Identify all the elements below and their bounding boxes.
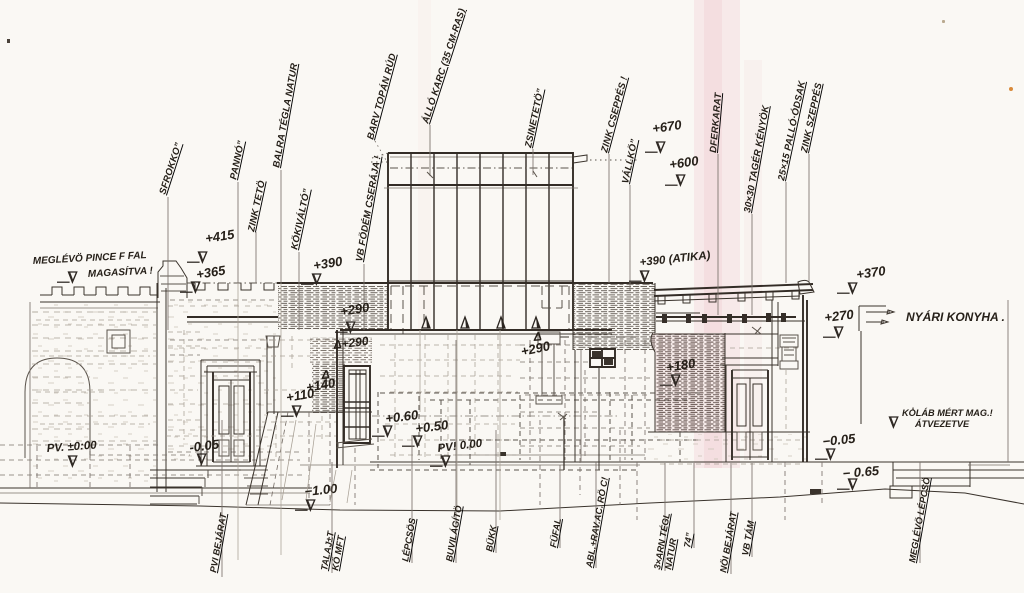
- svg-text:Δ: Δ: [532, 329, 542, 344]
- svg-text:SFROKKO”: SFROKKO”: [157, 141, 184, 196]
- svg-text:MAGASÍTVA !: MAGASÍTVA !: [87, 264, 153, 280]
- svg-text:MEGLÉVÖ LÉPCSÖ: MEGLÉVÖ LÉPCSÖ: [907, 477, 932, 564]
- svg-text:+415: +415: [204, 226, 236, 246]
- svg-text:+670: +670: [651, 117, 683, 136]
- svg-text:BARV TOPÁN RÚD: BARV TOPÁN RÚD: [364, 52, 399, 141]
- svg-text:ÁTVEZETVE: ÁTVEZETVE: [914, 419, 970, 429]
- svg-text:ZSINETETÖ”: ZSINETETÖ”: [523, 88, 546, 150]
- svg-text:+370: +370: [855, 263, 887, 282]
- svg-text:KO̊LÁB MÉRT MAG.!: KO̊LÁB MÉRT MAG.!: [902, 407, 993, 418]
- svg-text:PANNÓ”: PANNÓ”: [227, 139, 247, 180]
- svg-text:+110: +110: [285, 385, 316, 405]
- svg-text:FÜFAL: FÜFAL: [548, 517, 563, 548]
- svg-text:74”: 74”: [682, 532, 694, 549]
- svg-text:− 0.65: − 0.65: [842, 463, 880, 481]
- svg-text:ZINK CSEPPÉS !: ZINK CSEPPÉS !: [599, 75, 630, 154]
- svg-text:VÁLLKÖ”: VÁLLKÖ”: [620, 138, 640, 185]
- svg-text:PVI BEJÁRAT: PVI BEJÁRAT: [208, 511, 229, 573]
- svg-text:−1.00: −1.00: [304, 481, 339, 499]
- svg-text:+0.50: +0.50: [415, 417, 450, 436]
- svg-text:ABL.+RAV.AC. RÖ C!: ABL.+RAV.AC. RÖ C!: [584, 476, 610, 569]
- svg-text:LÉPCSÖS: LÉPCSÖS: [400, 517, 418, 563]
- svg-text:BÜKK: BÜKK: [484, 523, 499, 552]
- svg-text:KÖKIVÁLTÓ”: KÖKIVÁLTÓ”: [288, 187, 313, 250]
- svg-text:+390: +390: [312, 253, 344, 273]
- svg-text:−0.05: −0.05: [822, 431, 857, 449]
- svg-text:VB FÖDÉM CSERÁJA !: VB FÖDÉM CSERÁJA !: [354, 155, 383, 263]
- svg-text:NÖI BEJÁRAT: NÖI BEJÁRAT: [718, 510, 739, 574]
- svg-text:+365: +365: [195, 262, 227, 282]
- svg-text:VB TÁM: VB TÁM: [740, 520, 756, 557]
- svg-text:BALRA TÉGLA NATUR: BALRA TÉGLA NATUR: [271, 62, 300, 168]
- svg-text:ZINK TETÖ: ZINK TETÖ: [246, 179, 268, 233]
- svg-text:BUVILÁGÍTÖ: BUVILÁGÍTÖ: [444, 505, 464, 563]
- svg-text:NYÁRI KONYHA .: NYÁRI KONYHA .: [906, 309, 1005, 324]
- svg-text:+270: +270: [824, 306, 856, 325]
- svg-text:MEGLÉVÖ PINCE F FAL: MEGLÉVÖ PINCE F FAL: [32, 248, 146, 267]
